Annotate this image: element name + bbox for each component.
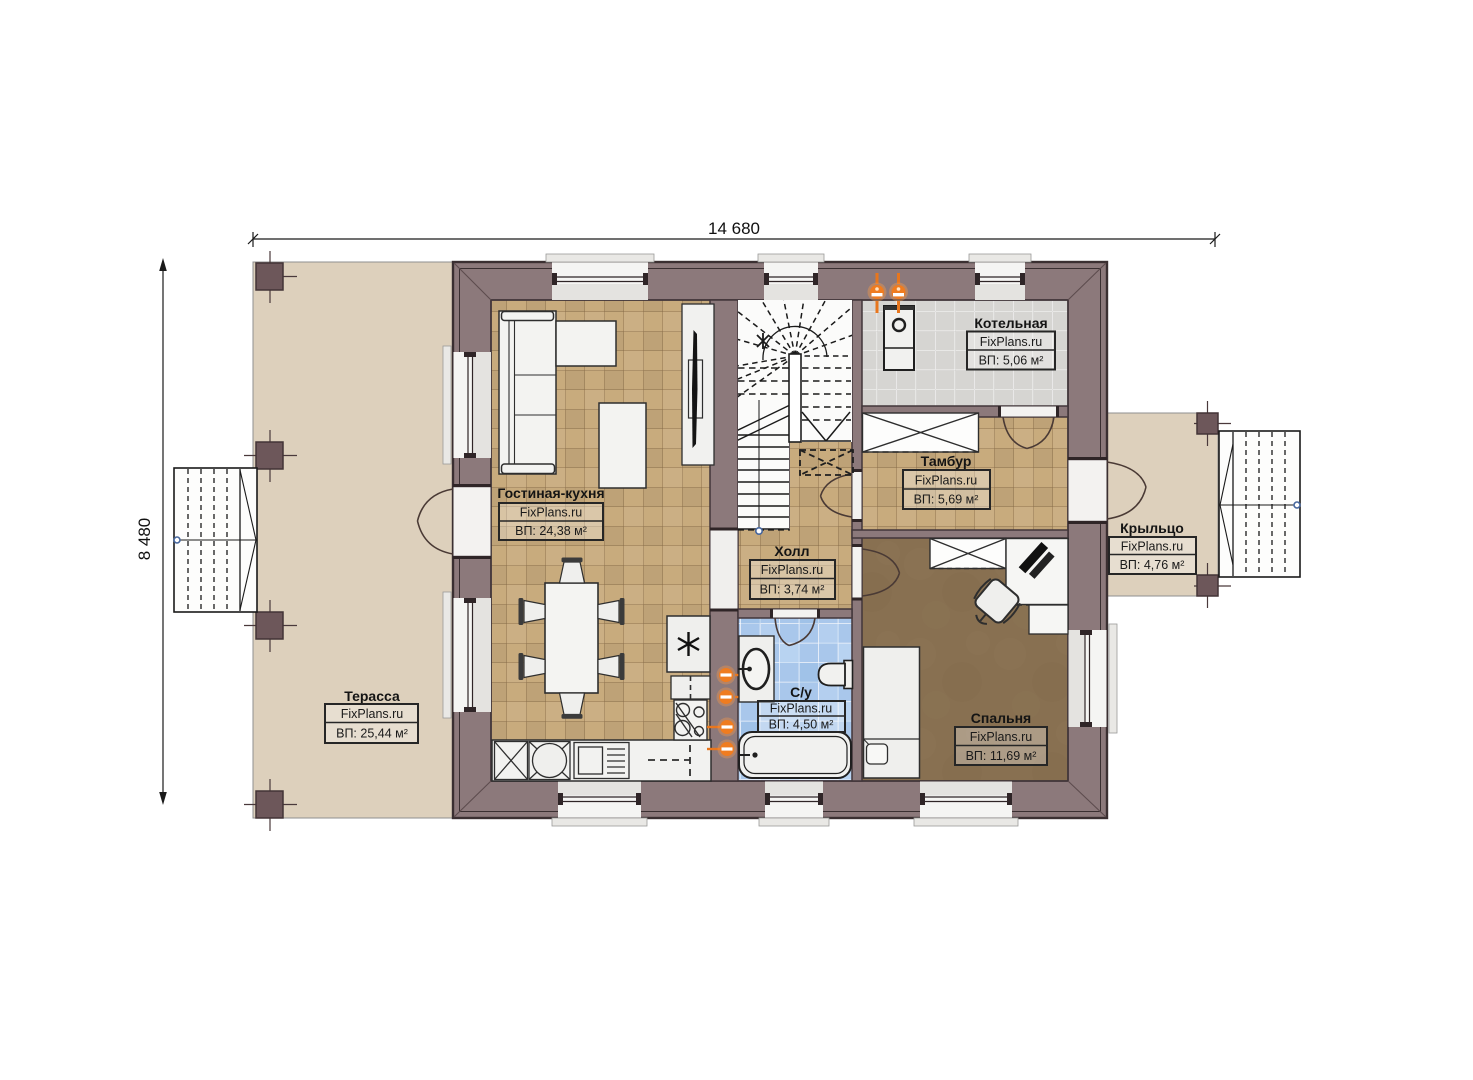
svg-text:FixPlans.ru: FixPlans.ru [341,707,404,721]
svg-text:ВП: 5,06 м²: ВП: 5,06 м² [979,354,1044,368]
svg-text:ВП: 4,76 м²: ВП: 4,76 м² [1120,558,1185,572]
svg-text:ВП: 4,50 м²: ВП: 4,50 м² [769,718,834,732]
svg-text:FixPlans.ru: FixPlans.ru [770,702,833,716]
svg-text:FixPlans.ru: FixPlans.ru [970,730,1033,744]
svg-text:Спальня: Спальня [971,710,1031,726]
svg-text:ВП: 24,38 м²: ВП: 24,38 м² [515,524,587,538]
svg-text:Гостиная-кухня: Гостиная-кухня [497,485,604,501]
svg-text:8 480: 8 480 [135,518,154,561]
svg-text:Тамбур: Тамбур [921,453,972,469]
svg-text:С/у: С/у [790,684,812,700]
svg-text:ВП: 3,74 м²: ВП: 3,74 м² [760,583,825,597]
svg-text:FixPlans.ru: FixPlans.ru [761,563,824,577]
svg-text:FixPlans.ru: FixPlans.ru [915,474,978,488]
svg-text:14 680: 14 680 [708,219,760,238]
svg-text:Терасса: Терасса [344,688,400,704]
svg-text:Холл: Холл [774,543,809,559]
svg-text:FixPlans.ru: FixPlans.ru [980,335,1043,349]
svg-text:ВП: 5,69 м²: ВП: 5,69 м² [914,493,979,507]
svg-text:FixPlans.ru: FixPlans.ru [520,506,583,520]
svg-text:Котельная: Котельная [974,315,1047,331]
svg-text:ВП: 25,44 м²: ВП: 25,44 м² [336,727,408,741]
svg-text:Крыльцо: Крыльцо [1120,520,1184,536]
svg-text:FixPlans.ru: FixPlans.ru [1121,540,1184,554]
svg-text:ВП: 11,69 м²: ВП: 11,69 м² [966,749,1037,763]
